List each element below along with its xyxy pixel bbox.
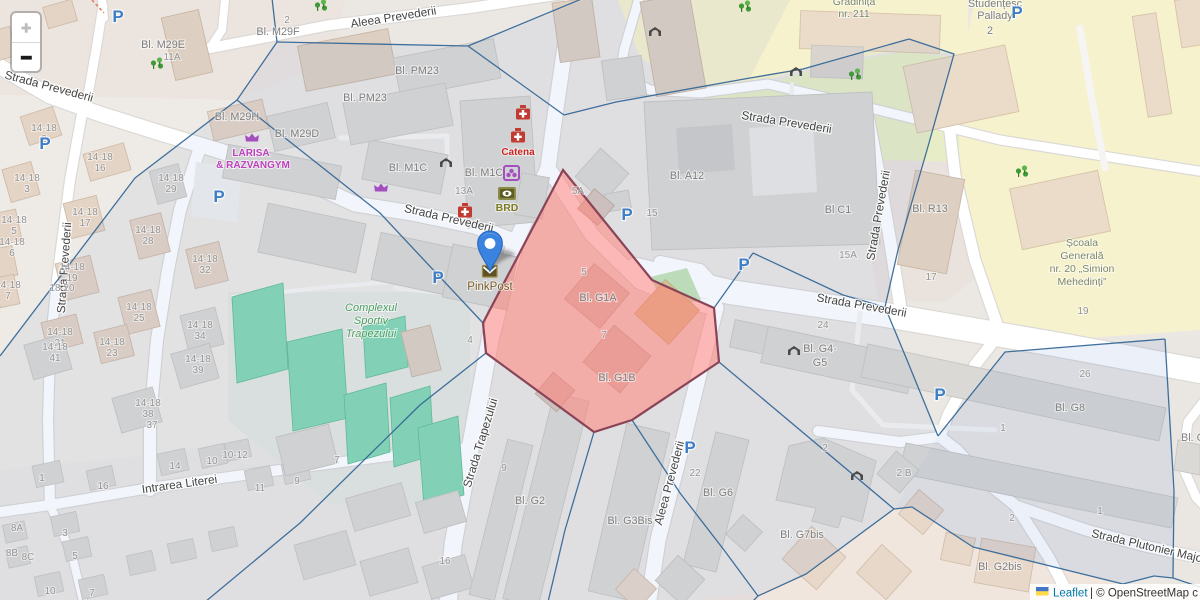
svg-text:4: 4 <box>467 335 473 346</box>
svg-text:10: 10 <box>44 586 56 597</box>
svg-text:1: 1 <box>1097 506 1103 517</box>
svg-text:8A: 8A <box>11 523 24 534</box>
svg-text:Bl. G2bis: Bl. G2bis <box>978 561 1022 573</box>
svg-text:P: P <box>684 438 695 457</box>
svg-text:Școala: Școala <box>1066 237 1098 249</box>
svg-text:14·18: 14·18 <box>59 262 85 273</box>
svg-text:9: 9 <box>294 476 300 487</box>
svg-text:3: 3 <box>62 528 68 539</box>
svg-text:2 B: 2 B <box>896 468 911 479</box>
svg-text:10: 10 <box>206 456 218 467</box>
svg-text:24: 24 <box>817 320 829 331</box>
svg-text:P: P <box>621 205 632 224</box>
svg-text:13A: 13A <box>455 186 473 197</box>
svg-text:8B: 8B <box>6 548 19 559</box>
svg-text:Bl. M1C: Bl. M1C <box>465 167 504 179</box>
svg-text:Bl. M29F: Bl. M29F <box>256 26 300 38</box>
svg-text:19: 19 <box>1077 306 1089 317</box>
svg-text:Complexul: Complexul <box>345 302 398 314</box>
svg-text:14·18: 14·18 <box>185 354 211 365</box>
svg-text:14·18: 14·18 <box>0 280 21 291</box>
svg-text:Bl. M1C: Bl. M1C <box>389 162 428 174</box>
svg-text:Bl. M29D: Bl. M29D <box>275 128 320 140</box>
svg-text:P: P <box>112 7 123 26</box>
svg-text:10-12: 10-12 <box>222 450 248 461</box>
svg-text:LARISA: LARISA <box>232 148 269 159</box>
svg-text:14·18: 14·18 <box>158 173 184 184</box>
svg-text:Bl. PM23: Bl. PM23 <box>343 92 387 104</box>
svg-text:8C: 8C <box>22 552 35 563</box>
svg-text:2: 2 <box>284 15 290 26</box>
svg-text:Bl. G8: Bl. G8 <box>1055 402 1085 414</box>
svg-text:Bl. G4·: Bl. G4· <box>803 343 837 355</box>
svg-text:Bl. M29E: Bl. M29E <box>141 39 185 51</box>
svg-text:Mehedinți”: Mehedinți” <box>1057 276 1107 288</box>
svg-text:Bl. G1B: Bl. G1B <box>598 372 635 384</box>
svg-text:P: P <box>39 134 50 153</box>
svg-text:| © OpenStreetMap c: | © OpenStreetMap c <box>1090 588 1198 600</box>
svg-text:17: 17 <box>925 272 937 283</box>
svg-text:Generală: Generală <box>1060 250 1103 262</box>
svg-text:Catena: Catena <box>501 147 535 158</box>
svg-text:14·18: 14·18 <box>192 254 218 265</box>
svg-text:7: 7 <box>5 291 11 302</box>
svg-text:Bl. G: Bl. G <box>1181 432 1200 444</box>
svg-text:11A: 11A <box>163 52 180 63</box>
svg-text:Bl. G2: Bl. G2 <box>515 495 545 507</box>
svg-text:37: 37 <box>146 420 158 431</box>
svg-text:Grădinița: Grădinița <box>833 0 876 8</box>
svg-text:Bl. G7bis: Bl. G7bis <box>780 529 824 541</box>
svg-text:1: 1 <box>1000 423 1006 434</box>
svg-text:2: 2 <box>987 25 993 37</box>
svg-text:25: 25 <box>133 313 145 324</box>
svg-text:17: 17 <box>79 218 91 229</box>
svg-text:3: 3 <box>24 184 30 195</box>
svg-text:14·18: 14·18 <box>42 342 68 353</box>
svg-text:BRD: BRD <box>496 202 519 214</box>
svg-text:7: 7 <box>334 455 340 466</box>
svg-text:Bl. G6: Bl. G6 <box>703 487 733 499</box>
svg-text:14·18: 14·18 <box>135 225 161 236</box>
svg-text:22: 22 <box>689 468 701 479</box>
svg-text:14·18: 14·18 <box>135 398 161 409</box>
svg-text:Bl. M29H: Bl. M29H <box>215 111 259 123</box>
svg-text:6: 6 <box>9 248 15 259</box>
svg-text:16: 16 <box>439 556 451 567</box>
svg-text:38: 38 <box>142 409 154 420</box>
svg-text:1: 1 <box>39 473 45 484</box>
svg-text:Leaflet: Leaflet <box>1053 588 1088 600</box>
svg-text:26: 26 <box>1079 369 1091 380</box>
svg-text:29: 29 <box>165 184 177 195</box>
svg-text:14·18: 14·18 <box>0 237 25 248</box>
svg-text:Bl. G3Bis: Bl. G3Bis <box>607 515 653 527</box>
svg-text:14·18: 14·18 <box>1 215 27 226</box>
svg-text:14·18: 14·18 <box>31 123 57 134</box>
svg-text:23: 23 <box>106 348 118 359</box>
svg-text:Bl. G1A: Bl. G1A <box>579 292 617 304</box>
svg-text:PinkPost: PinkPost <box>467 281 513 293</box>
svg-text:16: 16 <box>97 481 109 492</box>
svg-text:14·18: 14·18 <box>47 327 73 338</box>
svg-text:7: 7 <box>89 588 95 599</box>
svg-text:P: P <box>432 268 443 287</box>
svg-text:41: 41 <box>49 353 61 364</box>
svg-text:nr. 211: nr. 211 <box>838 8 869 20</box>
svg-text:P: P <box>934 385 945 404</box>
svg-text:14: 14 <box>169 461 181 472</box>
svg-text:Bl. A12: Bl. A12 <box>670 170 704 182</box>
svg-text:Trapezului: Trapezului <box>346 328 397 340</box>
svg-text:& RAZVANGYM: & RAZVANGYM <box>216 160 290 171</box>
svg-text:14·18: 14·18 <box>99 337 125 348</box>
svg-text:18 20: 18 20 <box>49 283 74 294</box>
svg-text:34: 34 <box>194 331 206 342</box>
svg-text:G5: G5 <box>813 357 827 369</box>
svg-text:14·18: 14·18 <box>187 320 213 331</box>
svg-text:Bl. PM23: Bl. PM23 <box>395 65 439 77</box>
svg-text:39: 39 <box>192 365 204 376</box>
svg-text:9: 9 <box>501 463 507 474</box>
svg-text:Bl C1: Bl C1 <box>825 204 851 216</box>
svg-text:P: P <box>1011 3 1022 22</box>
svg-text:5: 5 <box>581 267 587 278</box>
svg-text:Bl. R13: Bl. R13 <box>912 203 947 215</box>
svg-text:14·18: 14·18 <box>14 173 40 184</box>
svg-text:P: P <box>738 255 749 274</box>
svg-text:28: 28 <box>142 236 154 247</box>
svg-text:11: 11 <box>255 483 266 494</box>
svg-text:Pallady: Pallady <box>977 10 1013 22</box>
svg-text:nr. 20 „Simion: nr. 20 „Simion <box>1050 263 1115 275</box>
svg-text:P: P <box>213 187 224 206</box>
svg-text:Sportiv: Sportiv <box>354 315 390 327</box>
svg-text:5A: 5A <box>572 186 585 197</box>
svg-text:7: 7 <box>601 330 607 341</box>
svg-text:15: 15 <box>646 208 658 219</box>
svg-text:32: 32 <box>199 265 211 276</box>
svg-text:5: 5 <box>11 226 17 237</box>
svg-text:16: 16 <box>94 163 106 174</box>
svg-text:14·18: 14·18 <box>126 302 152 313</box>
svg-text:2: 2 <box>822 443 828 454</box>
svg-text:15A: 15A <box>839 250 857 261</box>
svg-text:2: 2 <box>1009 513 1015 524</box>
svg-text:14·18: 14·18 <box>87 152 113 163</box>
svg-text:5: 5 <box>72 551 78 562</box>
svg-text:14·18: 14·18 <box>72 207 98 218</box>
